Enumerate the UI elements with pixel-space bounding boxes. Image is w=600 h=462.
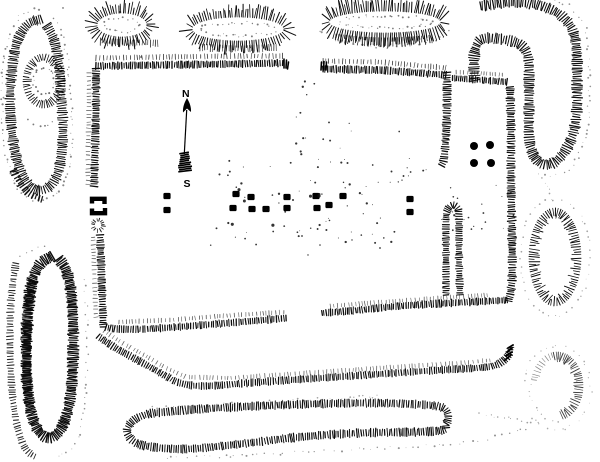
svg-text:N: N: [182, 88, 190, 100]
svg-text:S: S: [184, 178, 191, 190]
